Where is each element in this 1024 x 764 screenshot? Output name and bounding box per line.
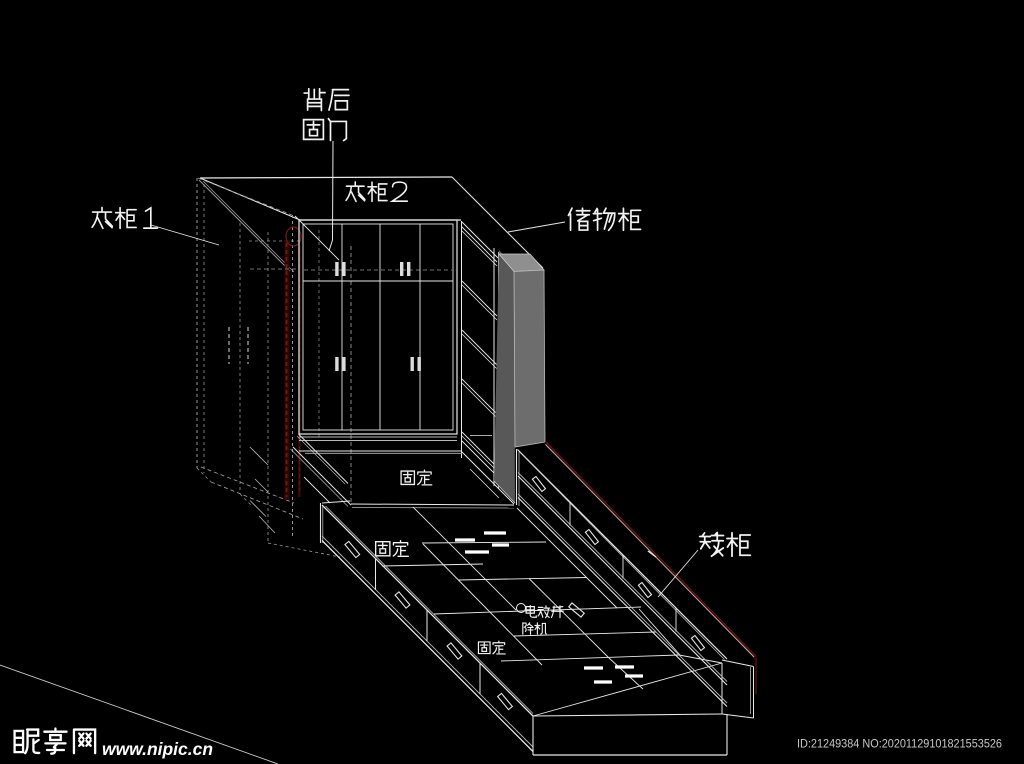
svg-text:ID:21249384 NO:202011291018215: ID:21249384 NO:20201129101821553526 [797,739,1002,751]
svg-text:www.nipic.cn: www.nipic.cn [102,739,213,759]
